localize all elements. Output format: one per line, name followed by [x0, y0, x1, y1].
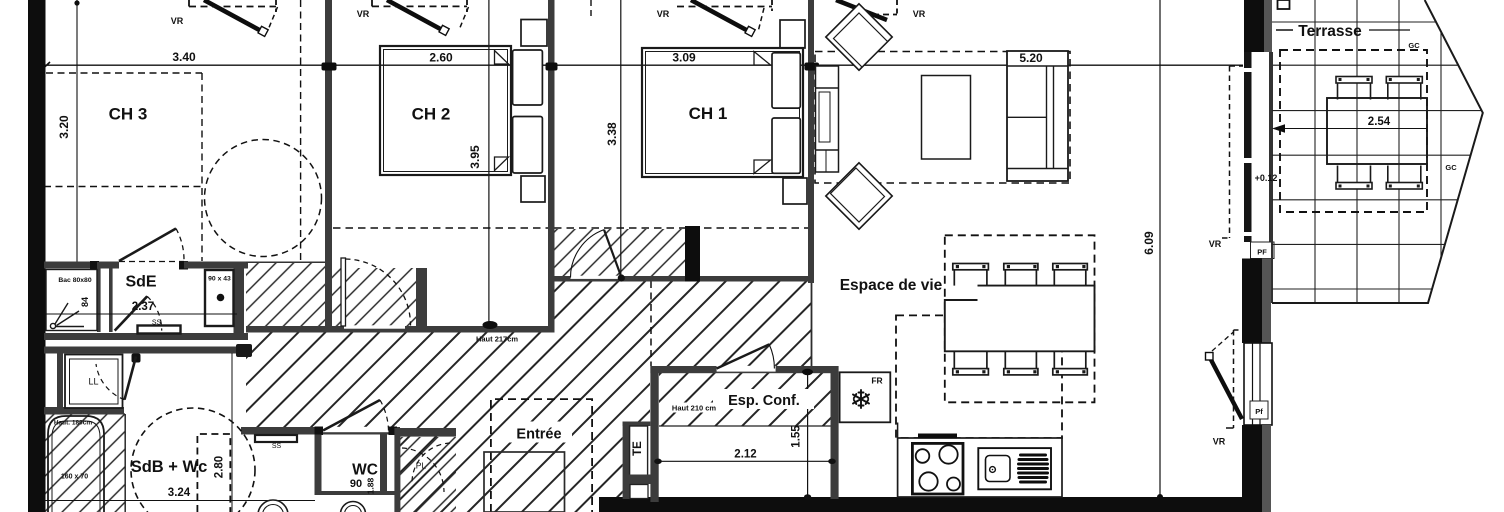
svg-text:160 x 70: 160 x 70 — [61, 474, 88, 481]
svg-text:GC: GC — [1445, 163, 1457, 172]
svg-text:2.54: 2.54 — [1368, 116, 1391, 128]
svg-text:3.40: 3.40 — [172, 50, 196, 64]
svg-text:Haut 210 cm: Haut 210 cm — [672, 404, 717, 413]
svg-text:3.38: 3.38 — [605, 122, 619, 146]
svg-text:Haut. 180cm: Haut. 180cm — [54, 420, 93, 427]
svg-text:LL: LL — [88, 377, 98, 387]
svg-text:CH 2: CH 2 — [412, 105, 451, 124]
svg-text:90 x 43: 90 x 43 — [208, 276, 231, 283]
svg-text:VR: VR — [357, 9, 370, 19]
svg-text:VR: VR — [657, 9, 670, 19]
svg-text:2.12: 2.12 — [734, 449, 756, 461]
svg-text:SS: SS — [272, 443, 282, 450]
svg-text:PF: PF — [1257, 248, 1267, 257]
svg-text:Entrée: Entrée — [516, 427, 561, 443]
svg-text:2.37: 2.37 — [132, 301, 154, 313]
svg-text:+0.12: +0.12 — [1255, 173, 1278, 183]
svg-text:3.09: 3.09 — [672, 51, 696, 65]
svg-text:CH 1: CH 1 — [689, 104, 728, 123]
svg-text:FR: FR — [871, 376, 882, 386]
svg-text:5.20: 5.20 — [1019, 51, 1043, 65]
svg-text:PL: PL — [416, 461, 427, 471]
svg-text:Pf: Pf — [1255, 407, 1263, 416]
svg-text:VR: VR — [171, 16, 184, 26]
svg-text:Espace de vie: Espace de vie — [840, 277, 943, 294]
svg-text:WC: WC — [352, 462, 378, 479]
svg-text:GC: GC — [1408, 41, 1420, 50]
svg-text:90: 90 — [350, 478, 362, 490]
svg-text:VR: VR — [913, 9, 926, 19]
svg-text:VR: VR — [1213, 437, 1226, 447]
svg-text:VR: VR — [1209, 239, 1222, 249]
svg-text:6.09: 6.09 — [1142, 231, 1156, 255]
svg-text:1.55: 1.55 — [791, 425, 803, 448]
svg-text:SdE: SdE — [125, 274, 156, 291]
svg-text:TE: TE — [632, 441, 644, 456]
svg-text:3.95: 3.95 — [468, 145, 482, 169]
svg-text:Haut 217cm: Haut 217cm — [476, 335, 518, 344]
svg-text:3.24: 3.24 — [168, 487, 191, 499]
svg-text:2.60: 2.60 — [429, 51, 453, 65]
svg-text:SdB + Wc: SdB + Wc — [131, 458, 208, 476]
svg-text:2.80: 2.80 — [214, 456, 226, 478]
svg-text:Bac 80x80: Bac 80x80 — [58, 277, 91, 284]
svg-text:1.88: 1.88 — [366, 477, 376, 494]
svg-text:SS: SS — [152, 320, 162, 327]
svg-text:Terrasse: Terrasse — [1298, 23, 1362, 40]
svg-text:3.20: 3.20 — [57, 115, 71, 139]
svg-text:Esp. Conf.: Esp. Conf. — [728, 393, 800, 409]
svg-text:CH 3: CH 3 — [109, 105, 148, 124]
svg-text:84: 84 — [80, 297, 90, 307]
